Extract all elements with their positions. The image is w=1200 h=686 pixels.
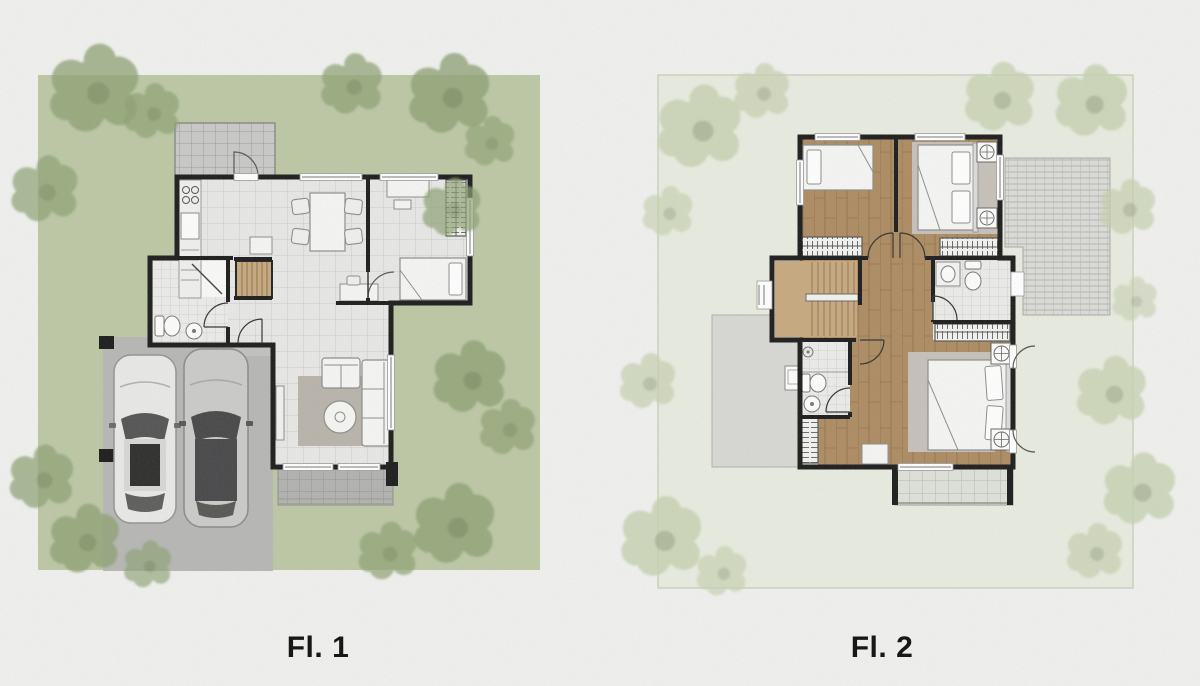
floor-plan-illustration: Fl. 1 Fl. 2	[0, 0, 1200, 686]
floor-2-label: Fl. 2	[802, 631, 962, 665]
floor-1-label: Fl. 1	[238, 631, 398, 665]
site-plan-svg	[0, 0, 1200, 686]
paper-texture	[0, 0, 1200, 686]
